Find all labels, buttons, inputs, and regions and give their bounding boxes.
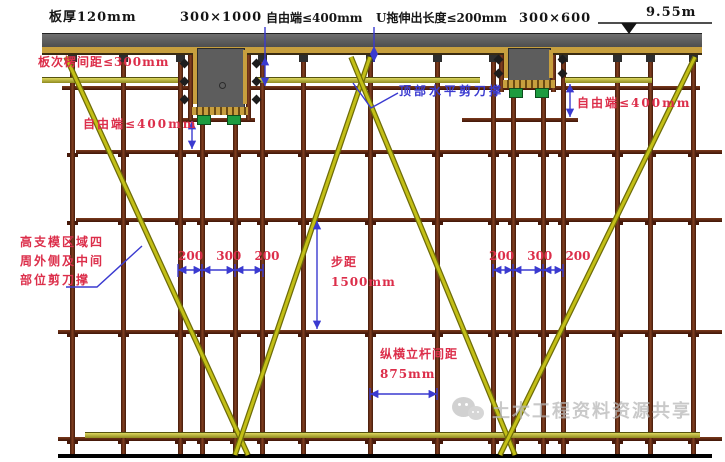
u-head-extension-label: U拖伸出长度≤200mm — [376, 11, 507, 26]
slab-joist-spacing-label: 板次楞间距≤300mm — [38, 55, 170, 70]
slab-thickness-label: 板厚120mm — [49, 10, 137, 25]
high-formwork-scaffold-diagram: 板厚120mm 300×1000 自由端≤400mm U拖伸出长度≤200mm … — [0, 0, 725, 462]
secondary-beam-size-label: 300×600 — [519, 11, 591, 26]
step-distance-label: 步距 1500mm — [331, 252, 396, 292]
free-end-right-label: 自由端≤400mm — [577, 96, 692, 111]
main-beam-size-label: 300×1000 — [180, 10, 262, 25]
elevation-level-symbol — [598, 23, 712, 34]
watermark-text: 土木工程资料资源共享 — [492, 397, 692, 423]
free-end-top-label: 自由端≤400mm — [266, 11, 363, 26]
free-end-left-label: 自由端≤400mm — [83, 117, 198, 132]
pole-spacing-label: 纵横立杆间距 875mm — [380, 344, 458, 384]
shear-brace-note: 高支模区域四 周外侧及中间 部位剪刀撑 — [20, 233, 104, 290]
elevation-label: 9.55m — [646, 5, 696, 20]
top-horizontal-brace-label: 顶部水平剪刀撑 — [399, 84, 504, 99]
spacing-chain-left-label: 200 300 200 — [178, 249, 280, 264]
wechat-icon — [452, 396, 488, 424]
spacing-chain-right-label: 200 300 200 — [489, 249, 591, 264]
watermark: 土木工程资料资源共享 — [452, 396, 692, 424]
